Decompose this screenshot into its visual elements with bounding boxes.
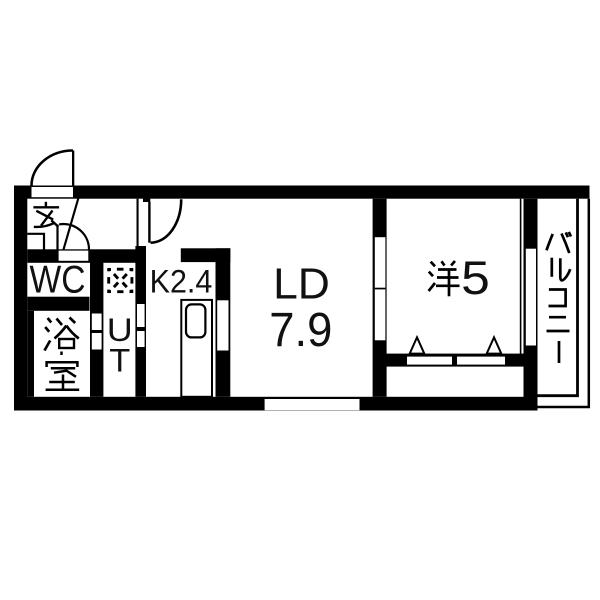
svg-text:WC: WC — [30, 259, 86, 302]
svg-text:T: T — [109, 342, 130, 378]
svg-text:7.9: 7.9 — [269, 303, 332, 357]
svg-text:LD: LD — [273, 260, 330, 308]
svg-text:K2.4: K2.4 — [150, 262, 213, 299]
svg-text:5: 5 — [461, 252, 490, 305]
